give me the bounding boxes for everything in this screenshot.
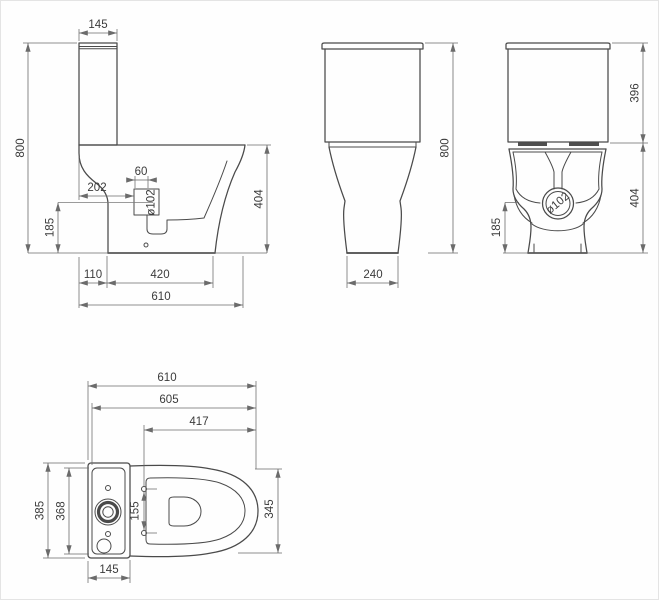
dim-hinge-to-front: 417 bbox=[189, 416, 208, 428]
cistern-outline-plan bbox=[88, 463, 130, 558]
dim-cistern-depth-plan: 145 bbox=[99, 564, 118, 576]
dim-overall-height: 800 bbox=[15, 138, 27, 157]
ext-hinge-holes bbox=[147, 489, 157, 533]
dim-rim-height: 404 bbox=[254, 189, 266, 209]
cistern-slot-left bbox=[518, 143, 547, 147]
dim-cistern-height: 396 bbox=[630, 83, 642, 102]
flush-button-inner bbox=[103, 507, 113, 517]
pedestal-lines-rear bbox=[534, 244, 581, 253]
side-view: 145 800 404 202 60 ø102 185 110 420 bbox=[15, 19, 271, 308]
cistern-body-rear bbox=[508, 49, 608, 142]
cistern-body-front bbox=[325, 49, 420, 142]
cistern-slot-right bbox=[569, 143, 599, 147]
bowl-back-profile bbox=[79, 145, 108, 253]
dim-cistern-depth: 145 bbox=[88, 19, 107, 31]
outlet-saddle-rear bbox=[532, 224, 583, 231]
rear-dimensions: 396 404 185 bbox=[491, 43, 648, 253]
seat-ring-plan bbox=[146, 478, 245, 545]
dim-cistern-width: 385 bbox=[35, 501, 47, 520]
front-view: 240 800 bbox=[322, 43, 458, 288]
cistern-lid-rear bbox=[506, 43, 610, 49]
bowl-right-silhouette-rear bbox=[584, 149, 606, 253]
dim-foot-width: 240 bbox=[363, 269, 382, 281]
dim-outlet-diameter-side: ø102 bbox=[146, 189, 158, 215]
lid-hole-bottom bbox=[106, 532, 111, 537]
flush-button-ring bbox=[99, 503, 118, 522]
technical-drawing-page: 145 800 404 202 60 ø102 185 110 420 bbox=[0, 0, 659, 600]
dim-outlet-height-rear: 185 bbox=[491, 218, 503, 237]
bowl-inner-walls-rear bbox=[513, 152, 602, 189]
dim-foot-depth: 420 bbox=[150, 269, 169, 281]
dim-outlet-height: 185 bbox=[45, 218, 57, 237]
bowl-left-profile-front bbox=[329, 147, 347, 253]
dim-bowl-height-rear: 404 bbox=[630, 188, 642, 208]
dim-rear-gap: 110 bbox=[84, 269, 102, 281]
bowl-front-profile bbox=[215, 145, 245, 253]
dim-body-depth-plan: 605 bbox=[159, 394, 178, 406]
front-dimensions: 240 800 bbox=[347, 43, 458, 288]
cistern-joint-front bbox=[329, 142, 416, 147]
cistern-lid-seam-side bbox=[79, 47, 117, 49]
side-dimensions: 145 800 404 202 60 ø102 185 110 420 bbox=[15, 19, 271, 308]
dim-overall-height-front: 800 bbox=[440, 138, 452, 157]
dim-outlet-diameter-rear: ø102 bbox=[544, 190, 572, 216]
dim-outlet-stub-width: 60 bbox=[135, 166, 148, 178]
cistern-lid-front bbox=[322, 43, 423, 49]
plan-view: 610 605 417 385 368 155 345 145 bbox=[35, 372, 283, 583]
dim-seat-width: 345 bbox=[264, 499, 276, 518]
dim-lid-width: 368 bbox=[56, 501, 68, 520]
dim-overall-depth: 610 bbox=[151, 291, 170, 303]
supply-hole bbox=[97, 539, 111, 553]
dim-overall-depth-plan: 610 bbox=[157, 372, 176, 384]
bowl-water-plan bbox=[169, 497, 201, 526]
rear-view: ø102 396 404 185 bbox=[491, 43, 648, 253]
bowl-right-profile-front bbox=[398, 147, 416, 253]
fixing-hole-side bbox=[144, 243, 148, 247]
lid-hole-top bbox=[106, 486, 111, 491]
bowl-left-silhouette-rear bbox=[509, 149, 531, 253]
dim-hinge-spacing: 155 bbox=[130, 501, 142, 520]
dim-rear-to-outlet: 202 bbox=[87, 182, 106, 194]
cistern-outline-side bbox=[79, 43, 117, 145]
flush-channel-rear bbox=[545, 152, 571, 189]
toilet-dimension-drawing: 145 800 404 202 60 ø102 185 110 420 bbox=[0, 0, 659, 600]
